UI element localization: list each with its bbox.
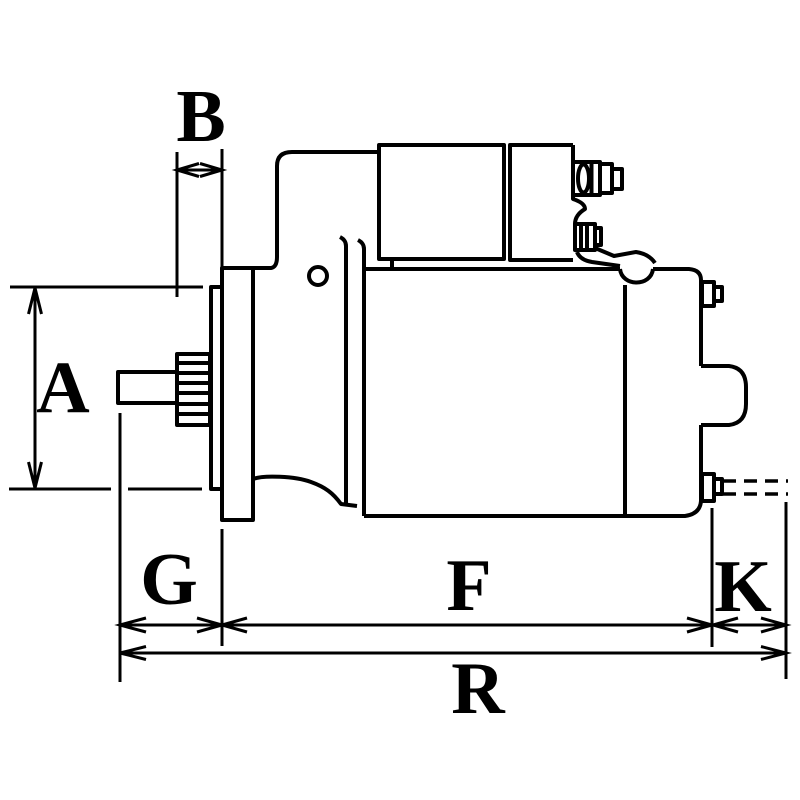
pinion-gear: [177, 354, 210, 425]
dimension-annotations: [9, 149, 786, 682]
grommet-bump: [620, 269, 653, 283]
rear-bearing-boss: [701, 366, 746, 425]
bolt-axis-dashed-lines: [723, 481, 788, 494]
starter-motor-dimension-diagram: A B G F K R: [0, 0, 800, 800]
terminal-bolt-tip: [612, 169, 622, 189]
dimension-label-r: R: [451, 648, 506, 730]
yoke-seam-front: [340, 237, 346, 505]
starter-motor-outline: [118, 145, 788, 520]
mounting-flange: [222, 268, 253, 520]
solenoid-edge-notch: [573, 195, 585, 224]
terminal-upper: [573, 162, 622, 195]
drive-housing-underside: [253, 477, 357, 506]
dimension-label-k: K: [714, 546, 772, 628]
solenoid-rear-block: [510, 145, 573, 260]
dimension-label-b: B: [176, 76, 225, 158]
dimension-label-g: G: [140, 539, 198, 621]
through-bolt-lower: [702, 474, 722, 501]
dimension-label-f: F: [446, 545, 491, 627]
housing-hole: [309, 267, 327, 285]
solenoid-front-block: [379, 145, 504, 259]
motor-body: [364, 269, 746, 516]
drive-housing-top: [253, 152, 377, 268]
yoke-seam-rear: [358, 240, 364, 516]
technical-drawing-canvas: A B G F K R: [0, 0, 800, 800]
through-bolt-upper: [702, 282, 722, 306]
dimension-label-a: A: [36, 347, 89, 429]
dimension-b: [177, 149, 222, 297]
drive-shaft: [118, 372, 177, 403]
terminal-lower: [575, 224, 601, 250]
